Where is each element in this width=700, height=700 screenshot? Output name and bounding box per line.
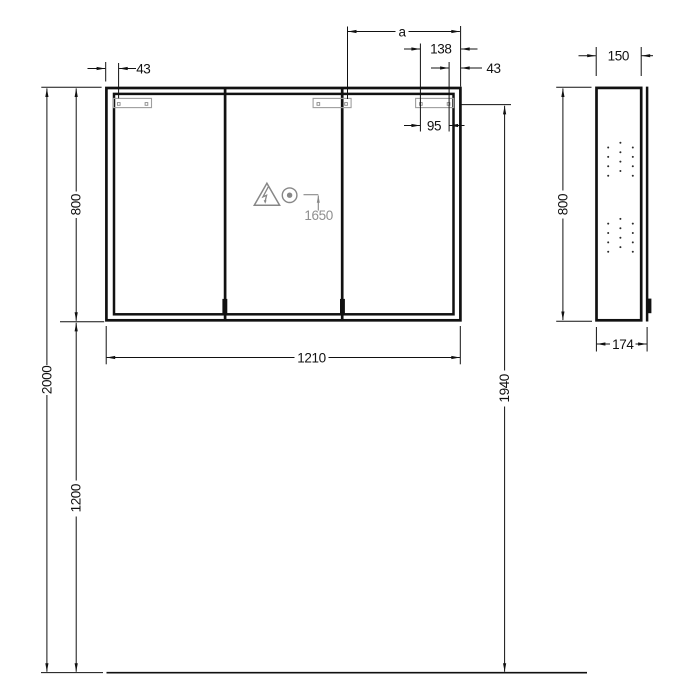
svg-text:150: 150 bbox=[608, 49, 629, 64]
svg-text:1650: 1650 bbox=[304, 208, 332, 223]
svg-text:95: 95 bbox=[427, 118, 441, 133]
svg-text:43: 43 bbox=[136, 61, 150, 76]
svg-text:a: a bbox=[398, 24, 406, 39]
svg-text:174: 174 bbox=[612, 337, 634, 352]
svg-text:1200: 1200 bbox=[69, 484, 84, 512]
svg-text:2000: 2000 bbox=[39, 366, 54, 394]
svg-text:1940: 1940 bbox=[497, 374, 512, 402]
svg-text:138: 138 bbox=[430, 42, 451, 57]
svg-text:1210: 1210 bbox=[297, 350, 325, 365]
svg-text:800: 800 bbox=[555, 194, 570, 215]
svg-text:43: 43 bbox=[486, 61, 500, 76]
svg-text:800: 800 bbox=[69, 194, 84, 215]
